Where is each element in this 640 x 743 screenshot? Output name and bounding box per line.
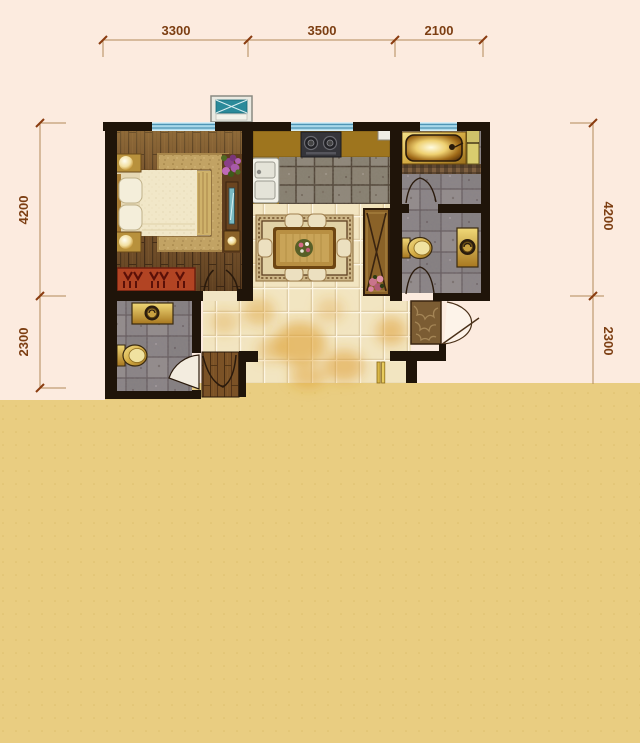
svg-text:2300: 2300: [16, 328, 31, 357]
svg-text:3500: 3500: [308, 23, 337, 38]
svg-text:2300: 2300: [601, 327, 616, 356]
svg-text:4200: 4200: [16, 196, 31, 225]
svg-text:4200: 4200: [601, 202, 616, 231]
svg-text:2100: 2100: [425, 23, 454, 38]
svg-text:3300: 3300: [162, 23, 191, 38]
